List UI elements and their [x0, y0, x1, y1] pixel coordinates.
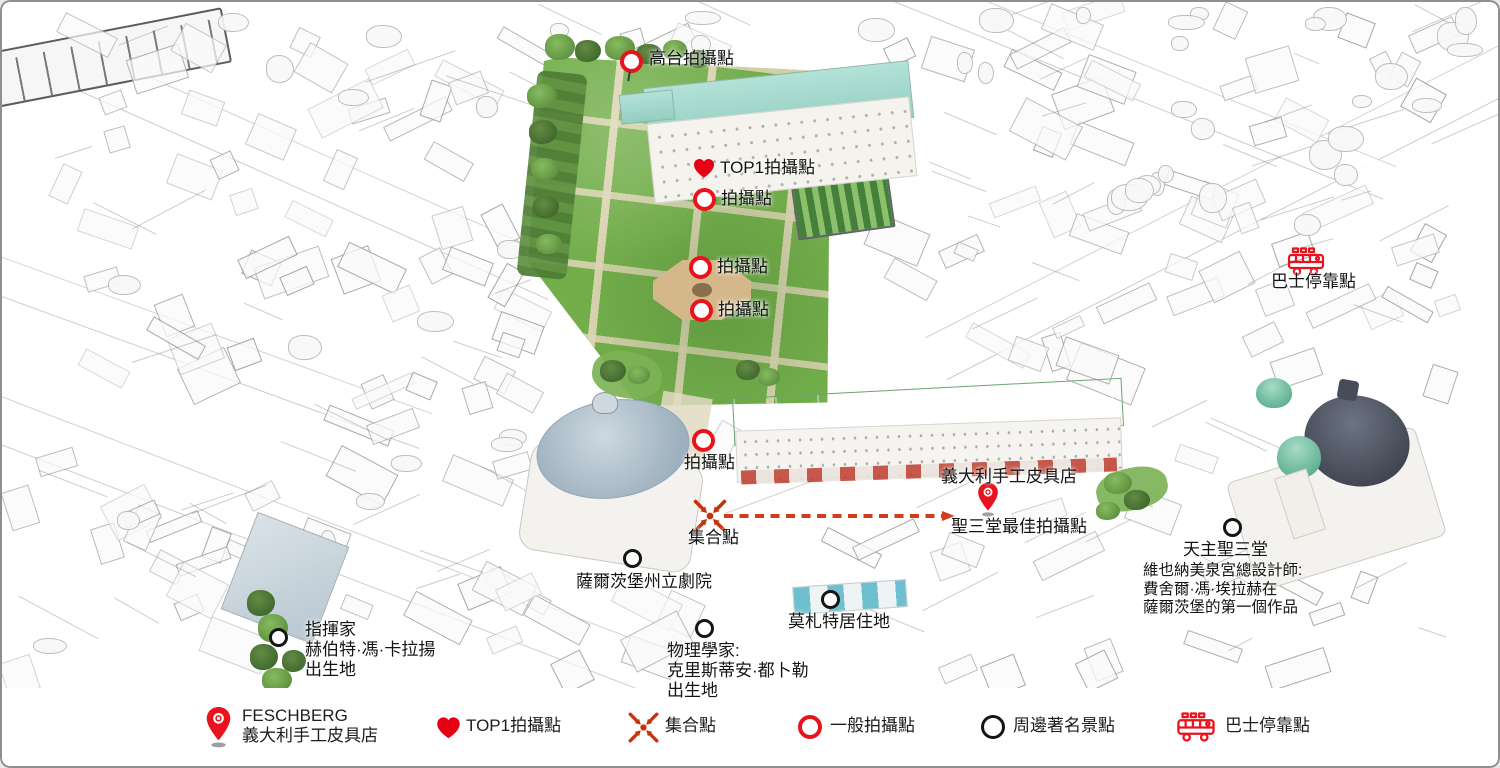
- legend: FESCHBERG義大利手工皮具店TOP1拍攝點集合點一般拍攝點周邊著名景點巴士…: [0, 0, 1500, 768]
- legend-item-label: TOP1拍攝點: [466, 716, 561, 736]
- label-line: 周邊著名景點: [1013, 716, 1115, 736]
- label-line: TOP1拍攝點: [466, 716, 561, 736]
- legend-item-label: 一般拍攝點: [830, 716, 915, 736]
- label-line: FESCHBERG: [242, 706, 378, 726]
- meeting-point-icon: [627, 711, 660, 744]
- legend-item-label: FESCHBERG義大利手工皮具店: [242, 706, 378, 746]
- bus-icon: [1175, 712, 1219, 743]
- label-line: 巴士停靠點: [1225, 716, 1310, 736]
- label-line: 一般拍攝點: [830, 716, 915, 736]
- photo-spot-circle-icon: [798, 715, 822, 739]
- legend-item-label: 周邊著名景點: [1013, 716, 1115, 736]
- shop-pin-icon: [203, 705, 234, 748]
- salzburg-photo-map: 高台拍攝點TOP1拍攝點拍攝點拍攝點拍攝點拍攝點集合點薩爾茨堡州立劇院義大利手工…: [0, 0, 1500, 768]
- legend-item-label: 巴士停靠點: [1225, 716, 1310, 736]
- legend-item-label: 集合點: [665, 716, 716, 736]
- label-line: 義大利手工皮具店: [242, 726, 378, 746]
- poi-circle-icon: [981, 715, 1005, 739]
- heart-icon: [435, 715, 462, 740]
- label-line: 集合點: [665, 716, 716, 736]
